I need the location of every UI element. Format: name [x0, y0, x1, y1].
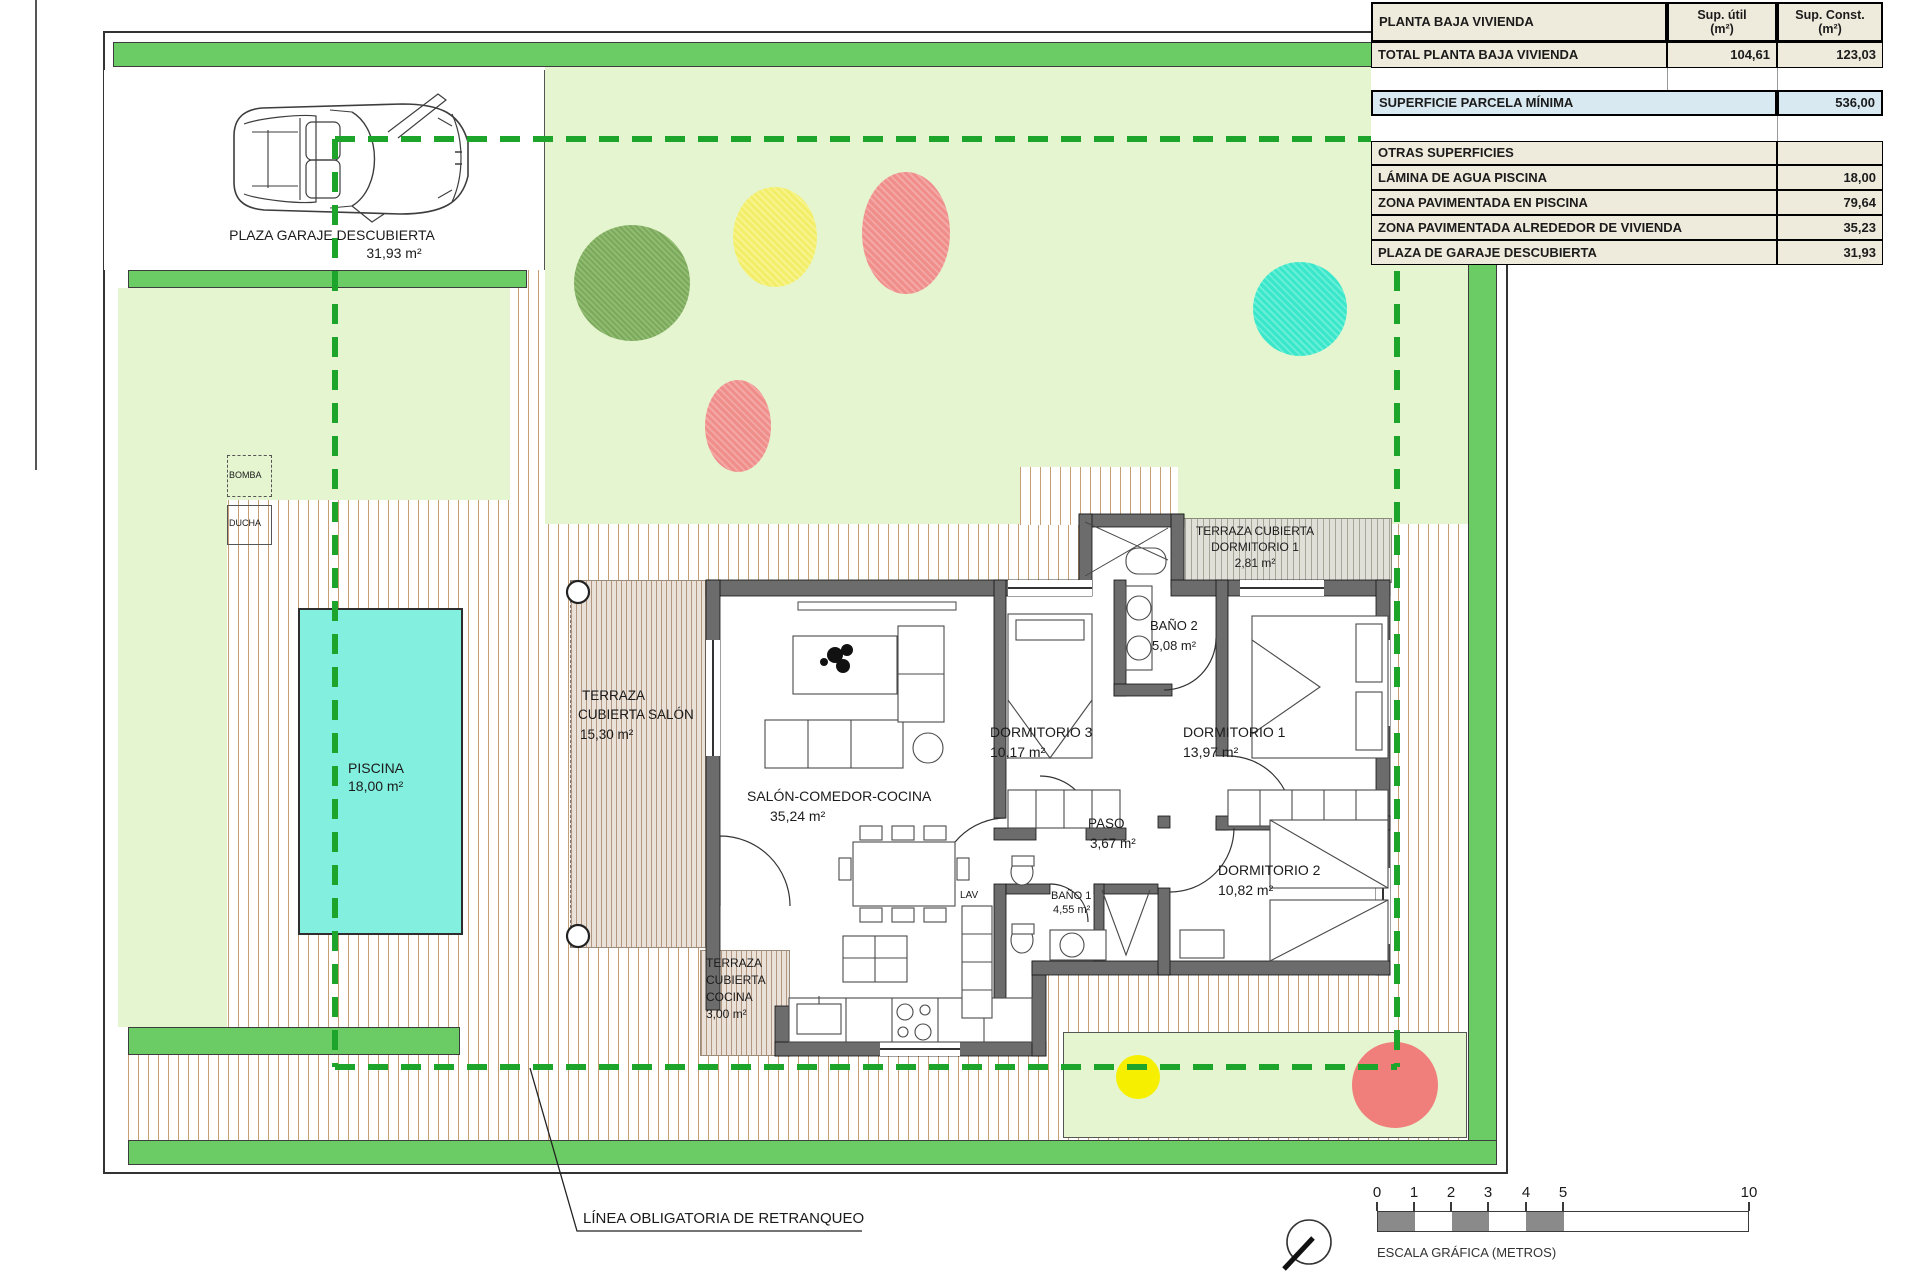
- row-value: 18,00: [1777, 165, 1883, 190]
- scale-number: 1: [1401, 1184, 1427, 1201]
- setback-leader-line: [530, 1068, 862, 1231]
- row-value: 35,23: [1777, 215, 1883, 240]
- scale-tick: [1487, 1202, 1489, 1211]
- setback-line-top: [335, 136, 1397, 142]
- car-icon: [234, 94, 468, 222]
- setback-line-left: [332, 139, 338, 1067]
- table-row: PLAZA DE GARAJE DESCUBIERTA 31,93: [1371, 240, 1883, 265]
- pump-label: BOMBA: [229, 470, 262, 480]
- dormitorio1-area: 13,97 m²: [1183, 744, 1238, 760]
- scale-tick: [1525, 1202, 1527, 1211]
- dormitorio2-area: 10,82 m²: [1218, 882, 1273, 898]
- table-gap-line: [1667, 68, 1668, 90]
- dormitorio3-label: DORMITORIO 3: [990, 724, 1092, 740]
- otras-title: OTRAS SUPERFICIES: [1371, 141, 1777, 165]
- bano2-area: 5,08 m²: [1152, 638, 1196, 653]
- laundry-label: LAV: [960, 890, 978, 901]
- garage-label: PLAZA GARAJE DESCUBIERTA: [216, 227, 448, 243]
- areas-table: PLANTA BAJA VIVIENDA Sup. útil (m²) Sup.…: [1371, 2, 1883, 264]
- scale-tick: [1376, 1202, 1378, 1211]
- paso-label: PASO: [1088, 816, 1125, 831]
- bano2-label: BAÑO 2: [1150, 618, 1198, 633]
- table-parcela-row: SUPERFICIE PARCELA MÍNIMA 536,00: [1371, 90, 1883, 116]
- terrace-dorm1-area: 2,81 m²: [1180, 556, 1330, 570]
- scale-bar: [1377, 1211, 1749, 1232]
- row-label: ZONA PAVIMENTADA EN PISCINA: [1371, 190, 1777, 215]
- terrace-salon-area: 15,30 m²: [580, 727, 633, 742]
- setback-label: LÍNEA OBLIGATORIA DE RETRANQUEO: [583, 1210, 864, 1227]
- parcela-label: SUPERFICIE PARCELA MÍNIMA: [1371, 90, 1777, 116]
- terrace-cocina-label-3: COCINA: [706, 990, 753, 1004]
- terrace-dorm1-label-1: TERRAZA CUBIERTA: [1180, 524, 1330, 538]
- table-row: LÁMINA DE AGUA PISCINA 18,00: [1371, 165, 1883, 190]
- scale-segment: [1378, 1212, 1415, 1231]
- paso-area: 3,67 m²: [1090, 836, 1136, 851]
- scale-tick: [1562, 1202, 1564, 1211]
- row-label: LÁMINA DE AGUA PISCINA: [1371, 165, 1777, 190]
- table-gap-line: [1777, 116, 1778, 141]
- scale-tick: [1413, 1202, 1415, 1211]
- terrace-cocina-area: 3,00 m²: [706, 1007, 747, 1021]
- terrace-cocina-label-2: CUBIERTA: [706, 973, 766, 987]
- parcela-value: 536,00: [1777, 90, 1883, 116]
- row-value: 79,64: [1777, 190, 1883, 215]
- total-const: 123,03: [1777, 42, 1883, 68]
- scale-number: 3: [1475, 1184, 1501, 1201]
- scale-segment: [1452, 1212, 1489, 1231]
- dormitorio3-area: 10,17 m²: [990, 744, 1045, 760]
- row-label: ZONA PAVIMENTADA ALREDEDOR DE VIVIENDA: [1371, 215, 1777, 240]
- scale-number: 5: [1550, 1184, 1576, 1201]
- table-gap-line: [1777, 68, 1778, 90]
- scale-number: 10: [1736, 1184, 1762, 1201]
- pool-label: PISCINA: [348, 760, 404, 776]
- table-header-row: PLANTA BAJA VIVIENDA Sup. útil (m²) Sup.…: [1371, 2, 1883, 42]
- table-row: ZONA PAVIMENTADA ALREDEDOR DE VIVIENDA 3…: [1371, 215, 1883, 240]
- dormitorio2-label: DORMITORIO 2: [1218, 862, 1320, 878]
- table-total-row: TOTAL PLANTA BAJA VIVIENDA 104,61 123,03: [1371, 42, 1883, 68]
- bano1-label: BAÑO 1: [1051, 890, 1091, 902]
- garage-area: 31,93 m²: [348, 245, 440, 261]
- site-plan-sheet: PLAZA GARAJE DESCUBIERTA 31,93 m² PISCIN…: [0, 0, 1920, 1280]
- bano1-area: 4,55 m²: [1053, 904, 1090, 916]
- table-row: ZONA PAVIMENTADA EN PISCINA 79,64: [1371, 190, 1883, 215]
- scale-tick: [1450, 1202, 1452, 1211]
- row-value: 31,93: [1777, 240, 1883, 265]
- scale-number: 4: [1513, 1184, 1539, 1201]
- salon-label: SALÓN-COMEDOR-COCINA: [747, 788, 931, 804]
- otras-title-spacer: [1777, 141, 1883, 165]
- terrace-dorm1-label-2: DORMITORIO 1: [1180, 540, 1330, 554]
- terrace-salon-label-2: CUBIERTA SALÓN: [578, 707, 694, 722]
- total-label: TOTAL PLANTA BAJA VIVIENDA: [1371, 42, 1667, 68]
- col-sup-const: Sup. Const. (m²): [1777, 2, 1883, 42]
- scale-segment: [1526, 1212, 1564, 1231]
- terrace-salon-label-1: TERRAZA: [582, 688, 645, 703]
- col-sup-util: Sup. útil (m²): [1667, 2, 1777, 42]
- table-otras-header: OTRAS SUPERFICIES: [1371, 141, 1883, 165]
- dormitorio1-label: DORMITORIO 1: [1183, 724, 1285, 740]
- total-util: 104,61: [1667, 42, 1777, 68]
- pool-area: 18,00 m²: [348, 778, 403, 794]
- row-label: PLAZA DE GARAJE DESCUBIERTA: [1371, 240, 1777, 265]
- table-title: PLANTA BAJA VIVIENDA: [1371, 2, 1667, 42]
- shower-label: DUCHA: [229, 518, 261, 528]
- north-arrow-icon: [1284, 1220, 1331, 1269]
- setback-line-bottom: [335, 1064, 1397, 1070]
- scale-label: ESCALA GRÁFICA (METROS): [1377, 1245, 1556, 1260]
- scale-number: 0: [1364, 1184, 1390, 1201]
- terrace-cocina-label-1: TERRAZA: [706, 956, 762, 970]
- scale-tick: [1748, 1202, 1750, 1211]
- scale-number: 2: [1438, 1184, 1464, 1201]
- setback-line-right: [1394, 139, 1400, 1067]
- salon-area: 35,24 m²: [770, 808, 825, 824]
